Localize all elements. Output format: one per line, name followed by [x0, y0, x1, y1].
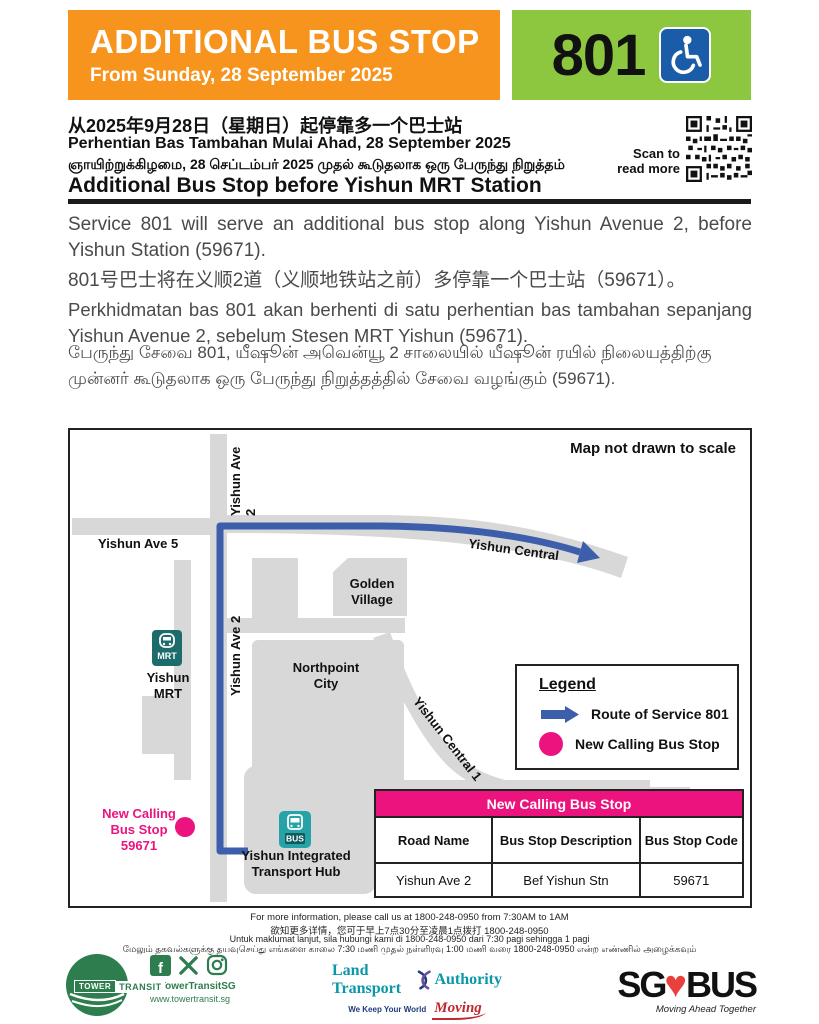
contact-info-malay: Untuk maklumat lanjut, sila hubungi kami… — [0, 934, 819, 944]
qr-code — [686, 116, 752, 182]
new-stop-callout: New Calling Bus Stop 59671 — [98, 806, 180, 854]
service-number: 801 — [552, 22, 646, 89]
transit-wordmark: TRANSIT — [116, 981, 165, 993]
svg-text:BUS: BUS — [286, 834, 304, 844]
service-plate: 801 — [512, 10, 751, 100]
route-map: Map not drawn to scale Yishun Ave 2 Yish… — [68, 428, 752, 908]
tower-transit-logo: TOWER TRANSIT f @TowerTransitSG www.towe… — [66, 954, 256, 1020]
contact-info-english: For more information, please call us at … — [0, 912, 819, 923]
cell-description: Bef Yishun Stn — [492, 863, 639, 897]
cell-code: 59671 — [640, 863, 743, 897]
intro-line-tamil: ஞாயிற்றுக்கிழமை, 28 செப்டம்பர் 2025 முதல… — [68, 156, 565, 175]
website-url: www.towertransit.sg — [150, 994, 236, 1004]
legend-route-label: Route of Service 801 — [591, 706, 729, 722]
wheelchair-icon — [659, 27, 711, 83]
legend-stop-label: New Calling Bus Stop — [575, 736, 720, 752]
map-legend: Legend Route of Service 801 New Calling … — [515, 664, 739, 770]
table-header-description: Bus Stop Description — [492, 817, 639, 863]
mrt-station-icon: MRT — [152, 630, 182, 671]
table-row: Yishun Ave 2 Bef Yishun Stn 59671 — [375, 863, 743, 897]
building-mrt-annex — [142, 696, 176, 754]
place-label-northpoint-city: Northpoint City — [266, 660, 386, 692]
table-header-road-name: Road Name — [375, 817, 492, 863]
poster: ADDITIONAL BUS STOP From Sunday, 28 Sept… — [0, 0, 819, 1024]
intro-heading-english: Additional Bus Stop before Yishun MRT St… — [68, 174, 542, 198]
x-twitter-icon — [178, 955, 199, 976]
body-paragraph-chinese: 801号巴士将在义顺2道（义顺地铁站之前）多停靠一个巴士站（59671）。 — [68, 268, 752, 293]
bus-wordmark: BUS — [686, 964, 756, 1006]
lta-tagline-2: Moving — [432, 1000, 486, 1020]
facebook-icon: f — [150, 955, 171, 976]
tower-wordmark: TOWER — [74, 980, 116, 993]
sg-wordmark: SG — [617, 964, 665, 1006]
lta-wordmark-1: Land Transport — [332, 962, 414, 998]
body-paragraph-english: Service 801 will serve an additional bus… — [68, 212, 752, 264]
qr-caption: Scan to read more — [596, 146, 680, 176]
heart-icon: ♥ — [664, 970, 687, 1000]
lta-logo: Land Transport Authority We Keep Your Wo… — [332, 962, 502, 1020]
effective-date: From Sunday, 28 September 2025 — [90, 65, 500, 87]
route-arrow-icon — [539, 704, 579, 724]
table-title: New Calling Bus Stop — [375, 790, 743, 817]
road-label-yishun-ave-2-top: Yishun Ave 2 — [228, 440, 258, 516]
place-label-golden-village: Golden Village — [330, 576, 414, 608]
header-banner: ADDITIONAL BUS STOP From Sunday, 28 Sept… — [68, 10, 500, 100]
road-label-yishun-ave-5: Yishun Ave 5 — [98, 536, 178, 551]
road-label-yishun-ave-2-mid: Yishun Ave 2 — [228, 580, 243, 696]
sg-bus-logo: SG ♥ BUS Moving Ahead Together — [596, 964, 756, 1015]
building-northpoint-wing — [252, 558, 298, 620]
cell-road-name: Yishun Ave 2 — [375, 863, 492, 897]
road-minor — [227, 618, 405, 633]
lta-ribbon-icon — [416, 967, 433, 993]
legend-title: Legend — [539, 676, 737, 694]
body-paragraph-tamil: பேருந்து சேவை 801, யீஷூன் அவென்யூ 2 சாலை… — [68, 340, 752, 392]
new-stop-table: New Calling Bus Stop Road Name Bus Stop … — [374, 789, 744, 898]
road-yishun-ave-5 — [72, 518, 212, 535]
instagram-icon — [206, 954, 228, 976]
new-stop-dot-icon — [539, 732, 563, 756]
section-divider — [68, 199, 751, 204]
intro-line-malay: Perhentian Bas Tambahan Mulai Ahad, 28 S… — [68, 135, 511, 153]
poster-title: ADDITIONAL BUS STOP — [90, 24, 500, 60]
lta-wordmark-2: Authority — [434, 971, 502, 989]
map-disclaimer: Map not drawn to scale — [570, 440, 736, 457]
svg-text:MRT: MRT — [157, 651, 177, 661]
bus-hub-icon: BUS — [279, 811, 311, 853]
table-header-code: Bus Stop Code — [640, 817, 743, 863]
place-label-yishun-mrt: Yishun MRT — [130, 670, 206, 702]
place-label-transport-hub: Yishun Integrated Transport Hub — [236, 848, 356, 880]
lta-tagline-1: We Keep Your World — [348, 1005, 426, 1014]
